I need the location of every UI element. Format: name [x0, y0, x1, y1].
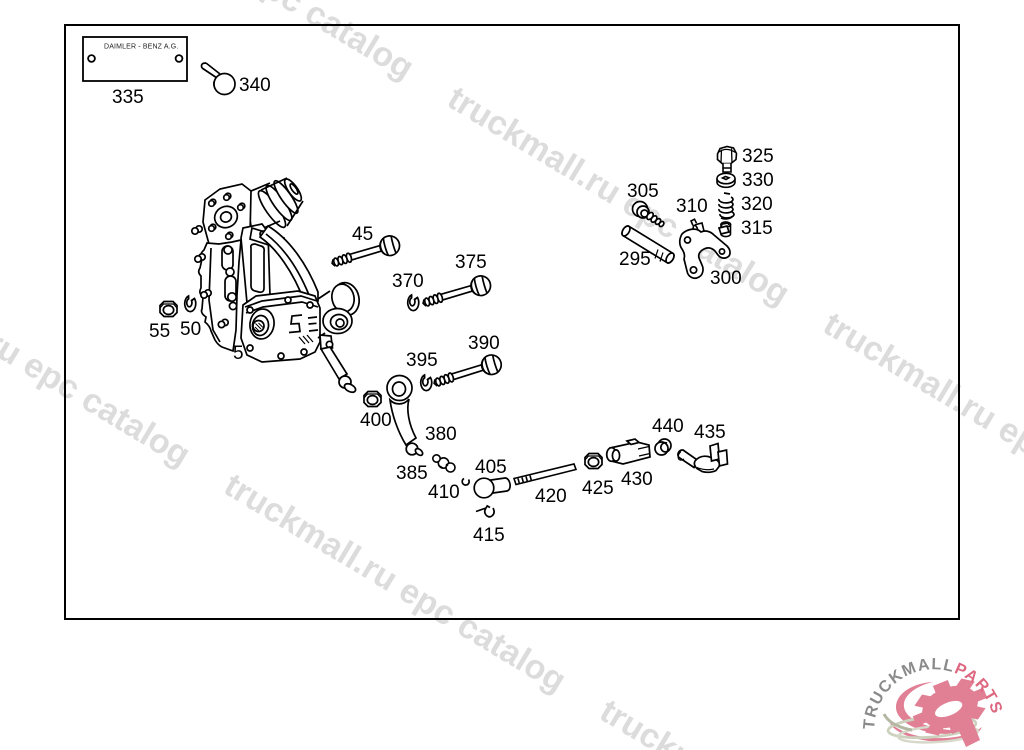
svg-text:370: 370 [392, 271, 424, 292]
svg-text:310: 310 [676, 196, 708, 217]
svg-text:395: 395 [406, 350, 438, 371]
svg-text:340: 340 [239, 75, 271, 96]
svg-text:400: 400 [360, 410, 392, 431]
svg-text:45: 45 [352, 224, 373, 245]
svg-text:DAIMLER - BENZ A.G.: DAIMLER - BENZ A.G. [104, 44, 178, 51]
svg-text:335: 335 [112, 87, 144, 108]
svg-text:300: 300 [710, 268, 742, 289]
svg-text:295: 295 [619, 249, 651, 270]
svg-text:440: 440 [652, 416, 684, 437]
svg-text:375: 375 [455, 252, 487, 273]
svg-text:330: 330 [742, 170, 774, 191]
svg-text:380: 380 [425, 424, 457, 445]
svg-text:390: 390 [468, 333, 500, 354]
svg-text:385: 385 [396, 463, 428, 484]
svg-text:5: 5 [233, 343, 244, 364]
svg-text:325: 325 [742, 146, 774, 167]
svg-text:305: 305 [627, 181, 659, 202]
svg-text:435: 435 [694, 422, 726, 443]
svg-text:50: 50 [180, 319, 201, 340]
svg-text:320: 320 [741, 194, 773, 215]
svg-text:405: 405 [475, 457, 507, 478]
svg-text:415: 415 [473, 525, 505, 546]
svg-text:430: 430 [621, 469, 653, 490]
svg-text:315: 315 [741, 218, 773, 239]
svg-text:420: 420 [535, 486, 567, 507]
svg-text:410: 410 [428, 482, 460, 503]
svg-text:425: 425 [582, 478, 614, 499]
svg-text:55: 55 [149, 321, 170, 342]
